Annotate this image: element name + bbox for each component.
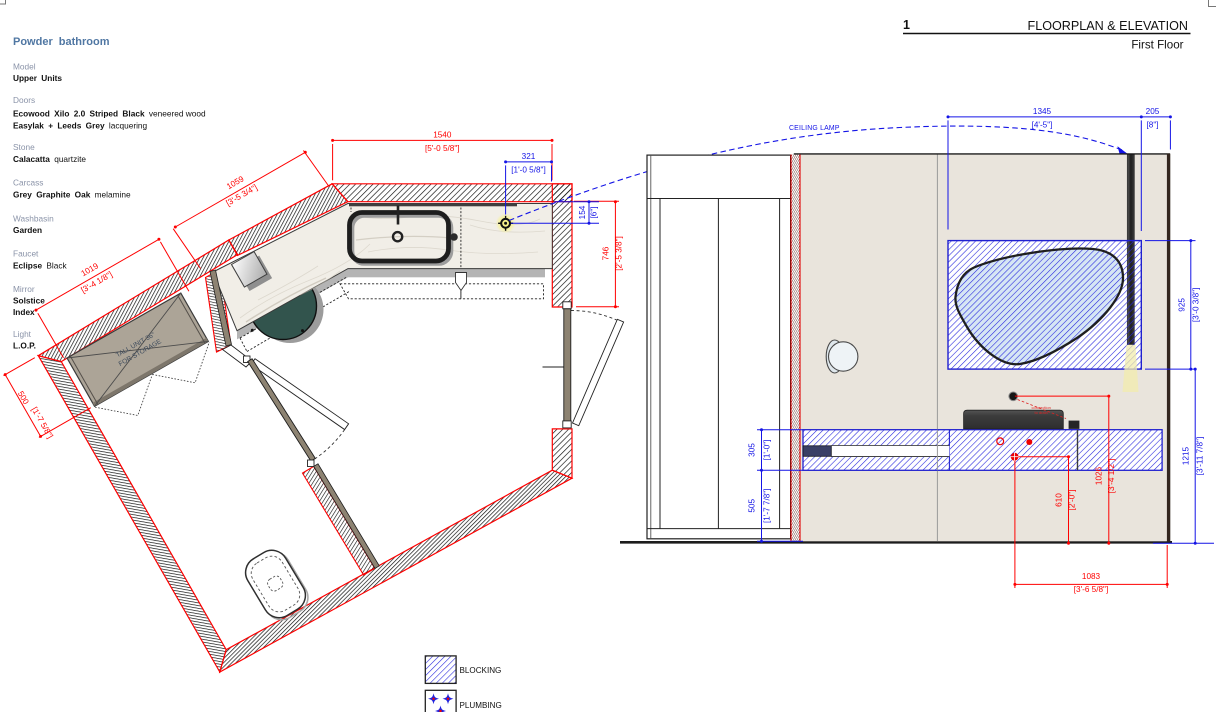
svg-text:[3'-11 7/8"]: [3'-11 7/8"] (1196, 437, 1205, 475)
svg-text:Ecowood Xilo 2.0 Striped Black: Ecowood Xilo 2.0 Striped Black veneered … (13, 109, 206, 119)
svg-text:[1'-0 5/8"]: [1'-0 5/8"] (511, 165, 546, 174)
svg-text:Powder bathroom: Powder bathroom (13, 36, 110, 48)
svg-text:154: 154 (578, 205, 587, 219)
svg-text:First Floor: First Floor (1131, 39, 1183, 52)
svg-text:L.O.P.: L.O.P. (13, 341, 36, 351)
svg-text:CEILING LAMP: CEILING LAMP (789, 125, 840, 132)
svg-text:321: 321 (522, 152, 536, 161)
svg-text:Mirror: Mirror (13, 284, 35, 294)
svg-text:[1'-7 7/8"]: [1'-7 7/8"] (763, 489, 772, 524)
svg-text:610: 610 (1055, 493, 1064, 507)
svg-text:746: 746 (602, 246, 611, 260)
svg-text:Solstice: Solstice (13, 296, 45, 306)
svg-text:[4'-5"]: [4'-5"] (1032, 120, 1053, 129)
svg-text:205: 205 (1146, 107, 1160, 116)
svg-text:[3'-4 1/2"]: [3'-4 1/2"] (1107, 459, 1116, 494)
svg-text:Upper Units: Upper Units (13, 73, 62, 83)
svg-text:Model: Model (13, 62, 36, 72)
svg-text:1019: 1019 (80, 261, 101, 278)
svg-text:1: 1 (903, 18, 910, 32)
svg-text:1026: 1026 (1095, 466, 1104, 485)
svg-text:FLOORPLAN & ELEVATION: FLOORPLAN & ELEVATION (1028, 19, 1189, 33)
svg-text:PLUMBING: PLUMBING (460, 701, 502, 710)
svg-text:[2'-0"]: [2'-0"] (1068, 490, 1077, 511)
svg-text:505: 505 (748, 499, 757, 513)
svg-text:Washbasin: Washbasin (13, 214, 54, 224)
svg-text:1215: 1215 (1182, 446, 1191, 465)
svg-text:Garden: Garden (13, 225, 42, 235)
svg-text:925: 925 (1178, 298, 1187, 312)
svg-text:Calacatta quartzite: Calacatta quartzite (13, 154, 86, 164)
svg-text:Grey Graphite Oak melamine: Grey Graphite Oak melamine (13, 190, 131, 200)
svg-text:Eclipse Black: Eclipse Black (13, 261, 68, 271)
svg-text:[1'-0"]: [1'-0"] (763, 440, 772, 461)
svg-text:Doors: Doors (13, 95, 35, 105)
svg-text:Easylak + Leeds Grey lacquerin: Easylak + Leeds Grey lacquering (13, 121, 148, 131)
svg-text:1540: 1540 (433, 131, 452, 140)
svg-text:[3'-0 3/8"]: [3'-0 3/8"] (1192, 288, 1201, 323)
svg-text:BLOCKING: BLOCKING (460, 666, 502, 675)
svg-text:Carcass: Carcass (13, 178, 43, 188)
svg-text:1345: 1345 (1033, 107, 1052, 116)
svg-text:[1'-7 5/8"]: [1'-7 5/8"] (30, 406, 55, 440)
svg-text:to drain: to drain (1035, 410, 1048, 415)
svg-text:Index: Index (13, 307, 35, 317)
svg-text:[2'-5 3/8"]: [2'-5 3/8"] (615, 236, 624, 271)
svg-text:Stone: Stone (13, 142, 35, 152)
svg-text:[3'-6 5/8"]: [3'-6 5/8"] (1074, 585, 1109, 594)
svg-text:Faucet: Faucet (13, 249, 39, 259)
svg-text:[5'-0 5/8"]: [5'-0 5/8"] (425, 144, 460, 153)
svg-text:Light: Light (13, 329, 32, 339)
svg-text:[6"]: [6"] (590, 206, 599, 218)
svg-text:1083: 1083 (1082, 572, 1101, 581)
svg-text:[8"]: [8"] (1146, 120, 1158, 129)
svg-text:305: 305 (748, 443, 757, 457)
